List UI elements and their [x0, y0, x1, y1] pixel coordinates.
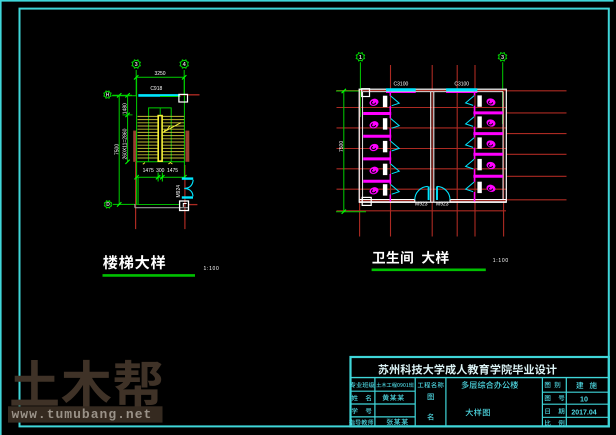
svg-text:260X11=2860: 260X11=2860 — [123, 128, 129, 159]
svg-text:C3100: C3100 — [394, 82, 409, 88]
svg-text:7500: 7500 — [339, 141, 345, 152]
svg-text:300: 300 — [156, 168, 165, 174]
svg-text:1475: 1475 — [167, 168, 178, 174]
svg-text:3: 3 — [135, 62, 138, 68]
svg-text:H: H — [106, 92, 110, 98]
svg-text:C918: C918 — [150, 86, 162, 92]
svg-text:3: 3 — [501, 55, 504, 61]
svg-text:3250: 3250 — [154, 71, 165, 77]
svg-text:10: 10 — [580, 394, 588, 403]
svg-text:www.tumubang.net: www.tumubang.net — [12, 407, 153, 422]
svg-text:1:100: 1:100 — [204, 266, 220, 272]
svg-text:7500: 7500 — [114, 144, 120, 155]
svg-text:1475: 1475 — [143, 168, 154, 174]
svg-text:1:100: 1:100 — [493, 258, 509, 264]
svg-text:C3100: C3100 — [454, 82, 469, 88]
svg-text:2017.04: 2017.04 — [571, 410, 596, 417]
svg-text:M923: M923 — [436, 202, 449, 208]
svg-text:D: D — [106, 202, 110, 208]
svg-text:1480: 1480 — [123, 103, 129, 114]
svg-text:1: 1 — [359, 55, 362, 61]
svg-text:M924: M924 — [176, 185, 182, 198]
svg-text:M923: M923 — [415, 202, 428, 208]
